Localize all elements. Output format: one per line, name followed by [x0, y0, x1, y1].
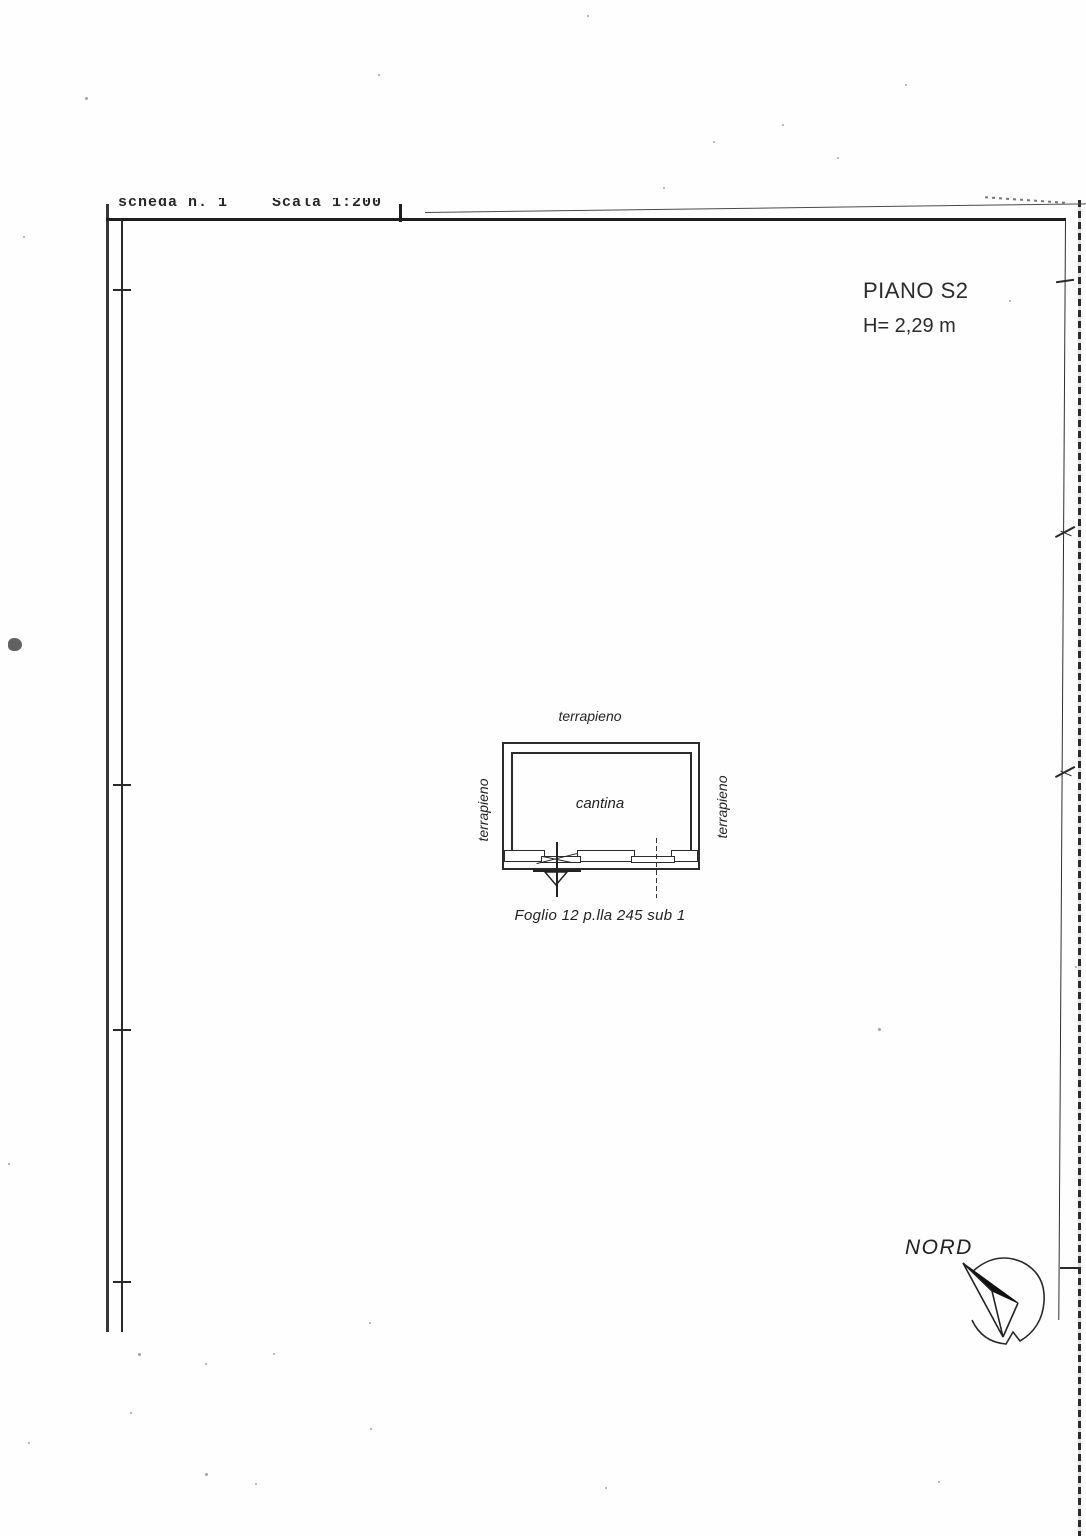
corner-dotted-line [985, 196, 1065, 204]
header-band: scheda n. 1 Scala 1:200 [110, 198, 530, 218]
scan-speck [138, 1353, 141, 1356]
terrapieno-label-left: terrapieno [475, 765, 491, 855]
border-line-right-outer-dashed [1078, 200, 1081, 1536]
north-arrow-icon [930, 1242, 1070, 1357]
terrapieno-label-right: terrapieno [714, 762, 730, 852]
opening-axis-dashed-line [656, 838, 657, 898]
left-ruler-tick [113, 289, 131, 291]
scan-speck [905, 84, 907, 86]
floor-height-label: H= 2,29 m [863, 315, 956, 338]
scan-speck [1075, 966, 1077, 968]
scan-speck [28, 1442, 30, 1444]
scan-speck [713, 141, 715, 143]
scan-speck [587, 15, 589, 17]
border-line-left-inner [121, 220, 123, 1332]
scan-speck [663, 187, 665, 189]
scan-speck [605, 1487, 607, 1489]
plan-inner-wall-top [511, 752, 691, 754]
scan-speck [938, 1481, 940, 1483]
scan-speck [255, 1483, 257, 1485]
scan-speck [1009, 300, 1011, 302]
scan-speck [837, 157, 839, 159]
left-ruler-tick [113, 784, 131, 786]
plan-bottom-wall-segment [504, 850, 545, 862]
plan-opening-threshold [631, 856, 675, 863]
plan-bottom-wall-segment [577, 850, 635, 862]
scan-speck [23, 236, 25, 238]
left-ruler-tick [113, 1029, 131, 1031]
entrance-arrow-icon [540, 870, 572, 890]
scan-speck [878, 1028, 881, 1031]
scan-speck [378, 74, 380, 76]
room-label: cantina [560, 795, 640, 812]
sheet-number-label: scheda n. 1 [118, 198, 228, 211]
header-rule-thick [106, 218, 1066, 221]
scan-speck [130, 1412, 132, 1414]
left-ruler-tick [113, 1281, 131, 1283]
scan-speck [8, 1163, 10, 1165]
scan-speck [782, 124, 784, 126]
cadastral-reference-label: Foglio 12 p.lla 245 sub 1 [490, 907, 710, 924]
border-line-left-outer [106, 204, 109, 1332]
scan-speck [273, 1353, 275, 1355]
terrapieno-label-top: terrapieno [520, 708, 660, 724]
scan-smudge [8, 638, 22, 651]
scan-speck [205, 1363, 207, 1365]
scan-speck [369, 1322, 371, 1324]
plan-bottom-wall-segment [671, 850, 698, 862]
cadastral-sheet-page: scheda n. 1 Scala 1:200 PIANO S2 H= 2,29… [0, 0, 1086, 1536]
scan-speck [370, 1428, 372, 1430]
scan-speck [85, 97, 88, 100]
scan-speck [205, 1473, 208, 1476]
floor-name-label: PIANO S2 [863, 278, 968, 304]
plan-inner-wall-left [511, 752, 513, 858]
scale-label: Scala 1:200 [272, 198, 382, 211]
plan-inner-wall-right [690, 752, 692, 858]
